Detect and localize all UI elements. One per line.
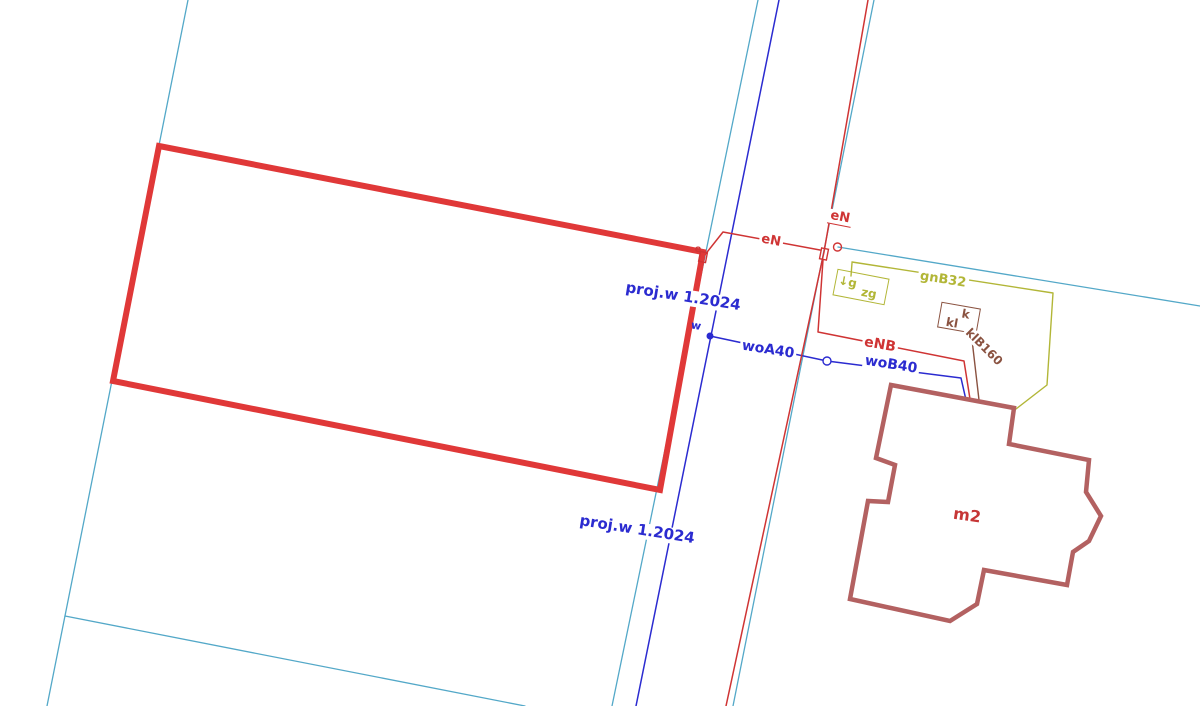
power-main-line-eN: [726, 0, 868, 706]
parcel-boundary-bottom: [65, 616, 525, 706]
map-canvas[interactable]: ↓gzgkklproj.w 1.2024proj.w 1.2024eNeNeNB…: [0, 0, 1200, 706]
gas-valve-stub: [851, 263, 852, 276]
power-connection-eNB: [818, 260, 970, 399]
gas-line-gnB32: [852, 262, 1053, 409]
designed-parcel-rectangle: [113, 146, 703, 490]
map-vector-layer: [0, 0, 1200, 706]
water-node-dot: [707, 333, 713, 339]
water-main-line: [636, 0, 779, 706]
parcel-boundary-right: [838, 247, 1200, 306]
power-branch-eN: [704, 232, 820, 256]
building-outline-m2: [850, 385, 1101, 621]
water-fitting-circle: [823, 357, 831, 365]
sewer-line-klB160: [971, 331, 979, 400]
